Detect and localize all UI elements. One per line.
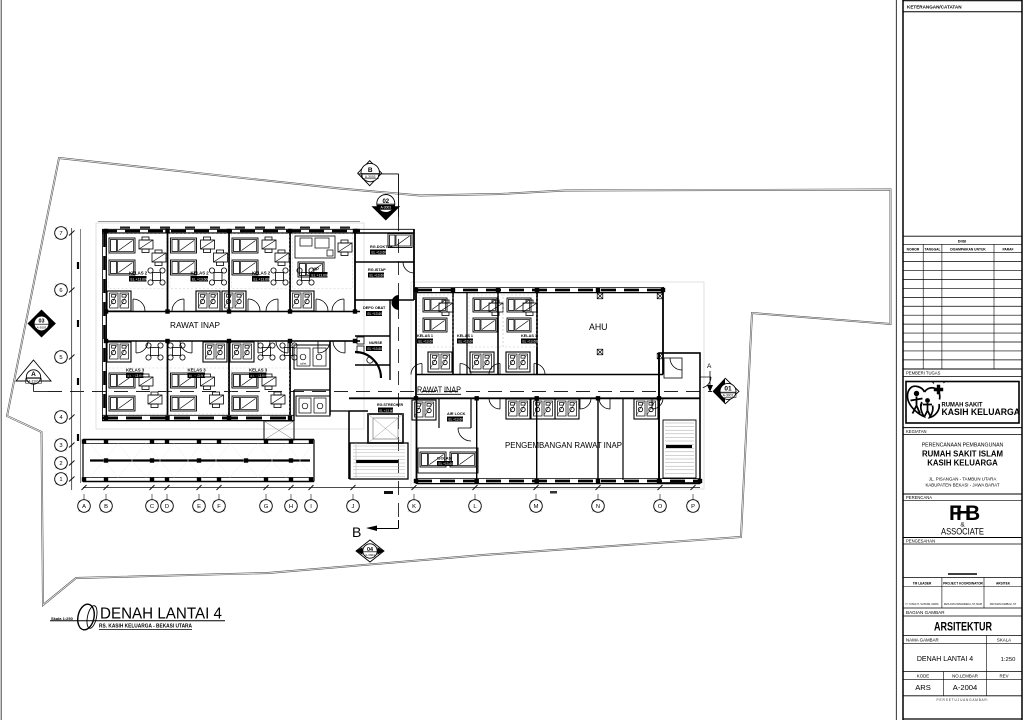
svg-text:AIR LOCK: AIR LOCK xyxy=(447,412,466,416)
svg-text:EL +13.600: EL +13.600 xyxy=(372,251,389,255)
svg-text:P E R S E T U J U A N G A M: P E R S E T U J U A N G A M B A R : xyxy=(937,698,989,702)
svg-text:RG.ISTAP: RG.ISTAP xyxy=(368,268,386,272)
svg-text:RS. KASIH KELUARGA - BEKASI UT: RS. KASIH KELUARGA - BEKASI UTARA xyxy=(99,624,192,630)
svg-text:BAGIAN GAMBAR: BAGIAN GAMBAR xyxy=(906,610,945,615)
svg-text:EL +13.600: EL +13.600 xyxy=(449,418,466,422)
svg-text:A: A xyxy=(707,363,712,370)
svg-text:KELAS 1: KELAS 1 xyxy=(457,334,473,338)
svg-text:2: 2 xyxy=(59,461,62,467)
svg-text:1:250: 1:250 xyxy=(1001,657,1016,663)
svg-text:A-3101: A-3101 xyxy=(28,379,39,383)
svg-text:EL +13.600: EL +13.600 xyxy=(370,274,387,278)
svg-text:KEGIATAN: KEGIATAN xyxy=(906,429,927,434)
svg-text:KASIH KELUARGA: KASIH KELUARGA xyxy=(927,459,998,468)
svg-text:EL +13.600: EL +13.600 xyxy=(379,409,395,413)
svg-text:REV: REV xyxy=(999,673,1008,678)
svg-text:SKALA: SKALA xyxy=(997,637,1011,642)
svg-text:E: E xyxy=(197,504,201,510)
svg-text:B: B xyxy=(104,504,108,510)
svg-text:H: H xyxy=(289,504,293,510)
svg-text:EL +13.600: EL +13.600 xyxy=(439,462,456,466)
svg-text:NURSE: NURSE xyxy=(369,341,383,345)
svg-text:6: 6 xyxy=(59,288,62,294)
svg-text:03: 03 xyxy=(39,319,45,325)
svg-text:ARSITEKTUR: ARSITEKTUR xyxy=(934,622,993,634)
svg-text:B: B xyxy=(368,167,373,174)
svg-text:A-2004: A-2004 xyxy=(953,683,978,692)
svg-text:NO.LEMBAR: NO.LEMBAR xyxy=(952,673,978,678)
svg-text:G: G xyxy=(264,504,269,510)
svg-text:02: 02 xyxy=(382,199,389,205)
svg-text:PENGEMBANGAN RAWAT INAP: PENGEMBANGAN RAWAT INAP xyxy=(505,441,623,450)
svg-text:EL +13.600: EL +13.600 xyxy=(192,277,209,281)
svg-text:Skala 1:250: Skala 1:250 xyxy=(51,616,74,621)
svg-text:D: D xyxy=(165,504,169,510)
svg-text:KELAS 3: KELAS 3 xyxy=(249,368,268,373)
svg-text:J: J xyxy=(352,504,355,510)
svg-text:P: P xyxy=(691,504,695,510)
svg-text:KODE: KODE xyxy=(917,673,930,678)
svg-text:KASIH KELUARGA: KASIH KELUARGA xyxy=(942,407,1021,417)
svg-text:DISAMPAIKAN UNTUK: DISAMPAIKAN UNTUK xyxy=(950,247,986,251)
svg-text:ARSITEK: ARSITEK xyxy=(996,581,1011,585)
svg-text:EL +13.600: EL +13.600 xyxy=(368,312,385,316)
svg-text:EL +13.600: EL +13.600 xyxy=(131,277,148,281)
svg-text:DIISI: DIISI xyxy=(958,240,966,244)
svg-text:A-3003: A-3003 xyxy=(37,326,47,330)
svg-text:VIP: VIP xyxy=(312,267,319,272)
svg-text:EL +13.600: EL +13.600 xyxy=(459,340,476,344)
svg-text:EL +13.600: EL +13.600 xyxy=(254,277,271,281)
svg-text:N: N xyxy=(596,504,600,510)
svg-text:KELAS 1: KELAS 1 xyxy=(521,334,537,338)
svg-text:KELAS 2: KELAS 2 xyxy=(252,271,271,276)
svg-text:PERENCANAAN PEMBANGUNAN: PERENCANAAN PEMBANGUNAN xyxy=(922,443,1004,449)
svg-text:5: 5 xyxy=(59,355,62,361)
svg-text:PROJECT KOORDINATOR: PROJECT KOORDINATOR xyxy=(943,581,983,585)
svg-text:PENGESAHAN: PENGESAHAN xyxy=(906,538,935,543)
svg-text:EL +13.600: EL +13.600 xyxy=(523,340,540,344)
svg-text:EL +13.600: EL +13.600 xyxy=(419,340,436,344)
svg-text:M: M xyxy=(534,504,539,510)
svg-text:A-3001: A-3001 xyxy=(723,394,734,398)
svg-text:B: B xyxy=(352,524,361,540)
svg-text:KELAS 3: KELAS 3 xyxy=(188,368,207,373)
svg-text:KELAS 1: KELAS 1 xyxy=(417,334,433,338)
svg-text:toilet: toilet xyxy=(300,362,307,366)
svg-text:NOMOR: NOMOR xyxy=(907,247,920,251)
svg-text:04: 04 xyxy=(367,547,373,553)
svg-text:KETERANGAN/CATATAN: KETERANGAN/CATATAN xyxy=(907,5,962,10)
svg-text:3: 3 xyxy=(59,443,62,449)
svg-text:01: 01 xyxy=(724,386,732,393)
svg-text:PERENCANA: PERENCANA xyxy=(906,495,932,500)
svg-text:ISOLASI: ISOLASI xyxy=(437,457,452,461)
svg-text:A-3003: A-3003 xyxy=(365,175,376,179)
svg-text:EL +13.600: EL +13.600 xyxy=(368,347,385,351)
svg-text:DWI DIAN KAMBALI, ST: DWI DIAN KAMBALI, ST xyxy=(990,603,1017,606)
svg-text:JL. PISANGAN - TAMBUN UTARA: JL. PISANGAN - TAMBUN UTARA xyxy=(929,477,997,482)
svg-text:F: F xyxy=(217,504,221,510)
svg-text:RG.STRECHER: RG.STRECHER xyxy=(377,403,404,407)
svg-text:RAWAT INAP: RAWAT INAP xyxy=(170,320,220,330)
svg-text:NAMA GAMBAR: NAMA GAMBAR xyxy=(906,637,939,642)
svg-text:O: O xyxy=(658,504,663,510)
svg-text:EL +13.600: EL +13.600 xyxy=(312,273,329,277)
svg-text:RIZA ASTA WINANDEKA, ST, MAPI: RIZA ASTA WINANDEKA, ST, MAPI xyxy=(944,603,983,606)
svg-text:RUMAH SAKIT ISLAM: RUMAH SAKIT ISLAM xyxy=(922,450,1003,459)
svg-text:TM LEADER: TM LEADER xyxy=(913,581,932,585)
svg-text:A: A xyxy=(82,504,86,510)
svg-text:1: 1 xyxy=(59,477,62,483)
svg-text:DENAH LANTAI 4: DENAH LANTAI 4 xyxy=(100,606,222,623)
svg-text:KELAS 2: KELAS 2 xyxy=(129,271,148,276)
svg-text:KELAS 3: KELAS 3 xyxy=(126,368,145,373)
svg-text:KABUPATEN BEKASI - JAWA BARAT: KABUPATEN BEKASI - JAWA BARAT xyxy=(925,482,999,487)
svg-text:DEPO OBAT: DEPO OBAT xyxy=(363,306,386,310)
svg-text:A-3003: A-3003 xyxy=(380,206,391,210)
svg-text:TANGGAL: TANGGAL xyxy=(924,247,940,251)
svg-text:RAWAT INAP: RAWAT INAP xyxy=(417,386,461,395)
svg-text:A-3004: A-3004 xyxy=(365,553,375,557)
svg-text:B: B xyxy=(965,502,980,525)
svg-text:ARS: ARS xyxy=(915,683,931,692)
svg-text:PARAF: PARAF xyxy=(1002,247,1013,251)
svg-text:C: C xyxy=(150,504,154,510)
svg-text:AHU: AHU xyxy=(589,322,608,333)
svg-text:A: A xyxy=(31,371,36,378)
svg-text:H. YUSUF H. SUSTAM, MARS: H. YUSUF H. SUSTAM, MARS xyxy=(906,603,939,606)
svg-text:K: K xyxy=(412,504,416,510)
svg-text:PEMBERI TUGAS: PEMBERI TUGAS xyxy=(906,370,941,375)
svg-text:DENAH LANTAI 4: DENAH LANTAI 4 xyxy=(917,656,973,663)
svg-text:ASSOCIATE: ASSOCIATE xyxy=(941,527,984,537)
svg-text:7: 7 xyxy=(59,231,62,237)
svg-text:KELAS 2: KELAS 2 xyxy=(191,271,210,276)
